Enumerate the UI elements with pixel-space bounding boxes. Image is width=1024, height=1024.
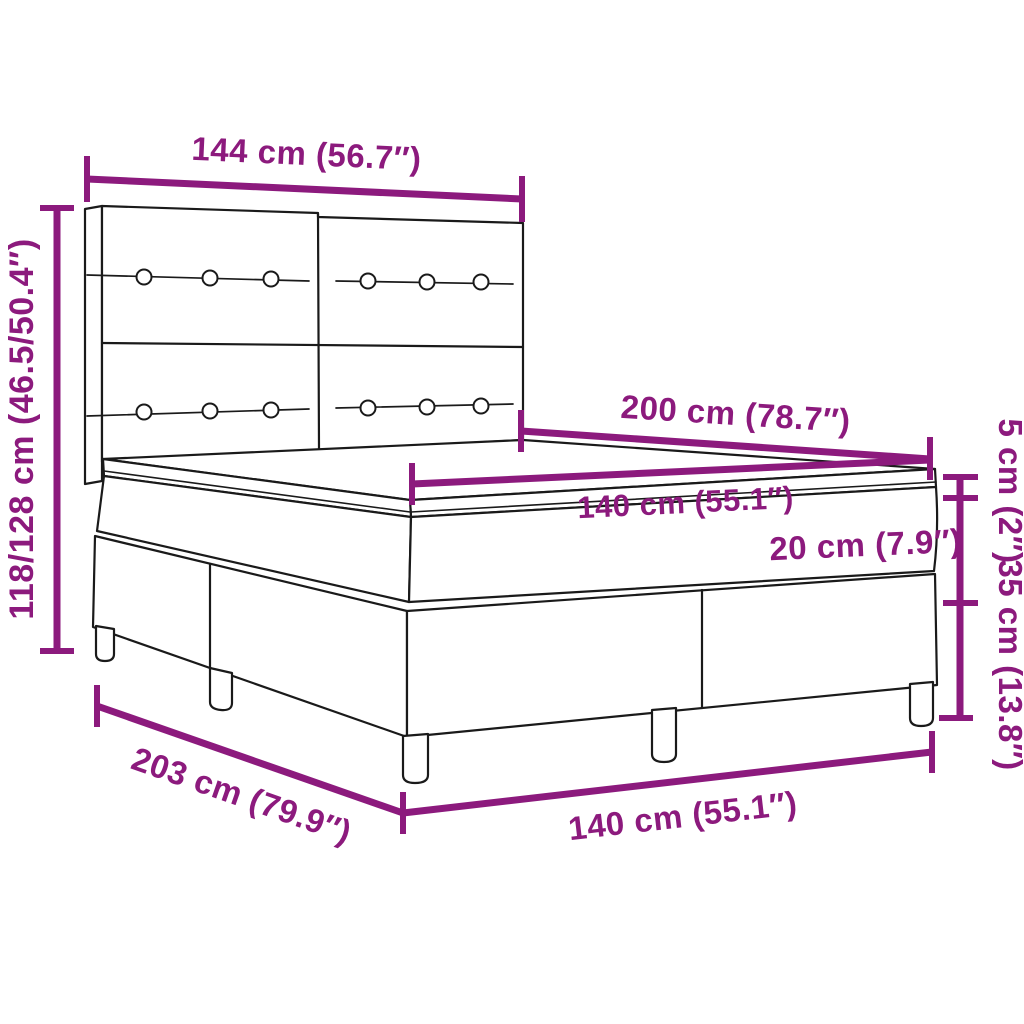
diagram-canvas: 144 cm (56.7″) 118/128 cm (46.5/50.4″) 2… bbox=[0, 0, 1024, 1024]
headboard-center-seam bbox=[318, 214, 319, 449]
headboard-height-label: 118/128 cm (46.5/50.4″) bbox=[3, 238, 41, 619]
bed-dimension-diagram: 144 cm (56.7″) 118/128 cm (46.5/50.4″) 2… bbox=[0, 0, 1024, 1024]
headboard-width-label: 144 cm (56.7″) bbox=[191, 130, 423, 177]
bed-illustration bbox=[85, 206, 937, 783]
headboard-side-strip bbox=[85, 206, 102, 484]
height-stack-dim-line bbox=[939, 477, 978, 718]
leg bbox=[652, 708, 676, 762]
leg bbox=[403, 734, 428, 783]
bed-length-label: 200 cm (78.7″) bbox=[620, 388, 852, 439]
base-height-label: 35 cm (13.8″) bbox=[992, 559, 1024, 770]
leg bbox=[910, 682, 933, 726]
headboard-height-dim-line bbox=[40, 208, 74, 651]
leg bbox=[210, 668, 232, 710]
topper-thickness-label: 5 cm (2″) bbox=[992, 418, 1024, 563]
leg bbox=[96, 626, 114, 661]
headboard-front bbox=[102, 206, 523, 462]
